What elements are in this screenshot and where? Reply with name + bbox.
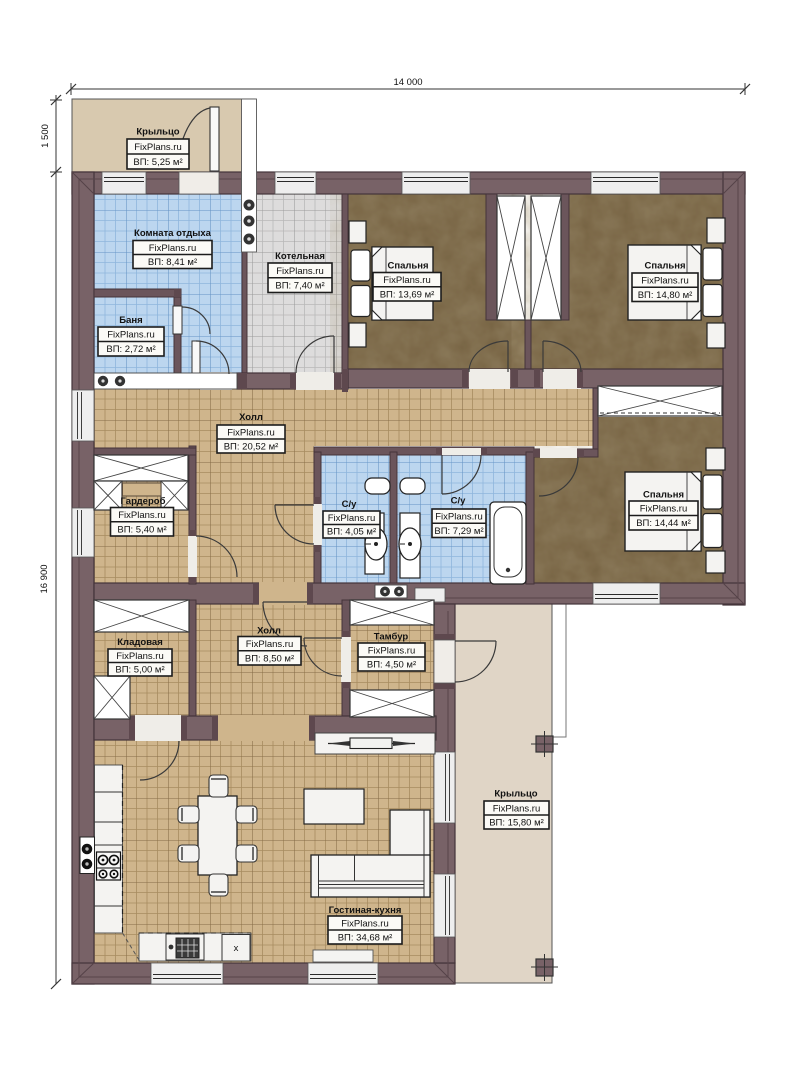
svg-text:Спальня: Спальня [643, 490, 684, 501]
svg-text:Крыльцо: Крыльцо [136, 127, 179, 138]
svg-text:FixPlans.ru: FixPlans.ru [227, 427, 275, 438]
svg-text:ВП: 8,50 м²: ВП: 8,50 м² [245, 653, 294, 664]
svg-text:Котельная: Котельная [275, 251, 325, 262]
svg-text:ВП: 15,80 м²: ВП: 15,80 м² [489, 817, 544, 828]
svg-text:FixPlans.ru: FixPlans.ru [134, 142, 182, 153]
svg-text:Тамбур: Тамбур [374, 632, 409, 643]
svg-text:ВП: 14,80 м²: ВП: 14,80 м² [638, 290, 693, 301]
svg-text:16 900: 16 900 [39, 564, 50, 593]
svg-text:Крыльцо: Крыльцо [494, 789, 537, 800]
svg-text:FixPlans.ru: FixPlans.ru [149, 243, 197, 254]
svg-text:FixPlans.ru: FixPlans.ru [341, 918, 389, 929]
svg-text:FixPlans.ru: FixPlans.ru [640, 504, 688, 515]
svg-text:ВП: 8,41 м²: ВП: 8,41 м² [148, 257, 197, 268]
svg-text:Кладовая: Кладовая [117, 637, 163, 648]
svg-text:FixPlans.ru: FixPlans.ru [383, 275, 431, 286]
svg-text:FixPlans.ru: FixPlans.ru [246, 639, 294, 650]
svg-text:ВП: 7,40 м²: ВП: 7,40 м² [275, 281, 324, 292]
svg-text:ВП: 20,52 м²: ВП: 20,52 м² [224, 441, 279, 452]
svg-text:Баня: Баня [119, 315, 142, 326]
svg-text:FixPlans.ru: FixPlans.ru [328, 513, 376, 524]
svg-text:ВП: 13,69 м²: ВП: 13,69 м² [380, 289, 435, 300]
svg-text:ВП: 5,40 м²: ВП: 5,40 м² [117, 524, 166, 535]
svg-text:С/у: С/у [342, 499, 358, 510]
svg-text:ВП: 14,44 м²: ВП: 14,44 м² [636, 518, 691, 529]
svg-text:ВП: 4,05 м²: ВП: 4,05 м² [327, 527, 376, 538]
svg-text:14 000: 14 000 [393, 77, 422, 88]
svg-text:Гостиная-кухня: Гостиная-кухня [329, 905, 402, 916]
svg-text:С/у: С/у [451, 496, 467, 507]
svg-text:FixPlans.ru: FixPlans.ru [116, 651, 164, 662]
svg-text:FixPlans.ru: FixPlans.ru [641, 276, 689, 287]
svg-text:FixPlans.ru: FixPlans.ru [435, 512, 483, 523]
svg-text:ВП: 4,50 м²: ВП: 4,50 м² [367, 659, 416, 670]
svg-text:ВП: 34,68 м²: ВП: 34,68 м² [338, 932, 393, 943]
svg-text:ВП: 5,25 м²: ВП: 5,25 м² [133, 157, 182, 168]
svg-text:Холл: Холл [257, 626, 281, 637]
svg-text:FixPlans.ru: FixPlans.ru [107, 330, 155, 341]
svg-text:FixPlans.ru: FixPlans.ru [118, 510, 166, 521]
svg-text:FixPlans.ru: FixPlans.ru [493, 803, 541, 814]
svg-text:Спальня: Спальня [644, 261, 685, 272]
svg-text:FixPlans.ru: FixPlans.ru [276, 266, 324, 277]
svg-text:FixPlans.ru: FixPlans.ru [368, 645, 416, 656]
svg-text:Комната отдыха: Комната отдыха [134, 228, 212, 239]
svg-text:ВП: 7,29 м²: ВП: 7,29 м² [434, 526, 483, 537]
svg-text:х: х [234, 943, 239, 954]
svg-text:1 500: 1 500 [40, 124, 51, 148]
svg-text:Спальня: Спальня [387, 261, 428, 272]
svg-text:ВП: 2,72 м²: ВП: 2,72 м² [106, 344, 155, 355]
svg-text:ВП: 5,00 м²: ВП: 5,00 м² [115, 665, 164, 676]
svg-text:Гардероб: Гардероб [121, 496, 166, 507]
svg-text:Холл: Холл [239, 412, 263, 423]
